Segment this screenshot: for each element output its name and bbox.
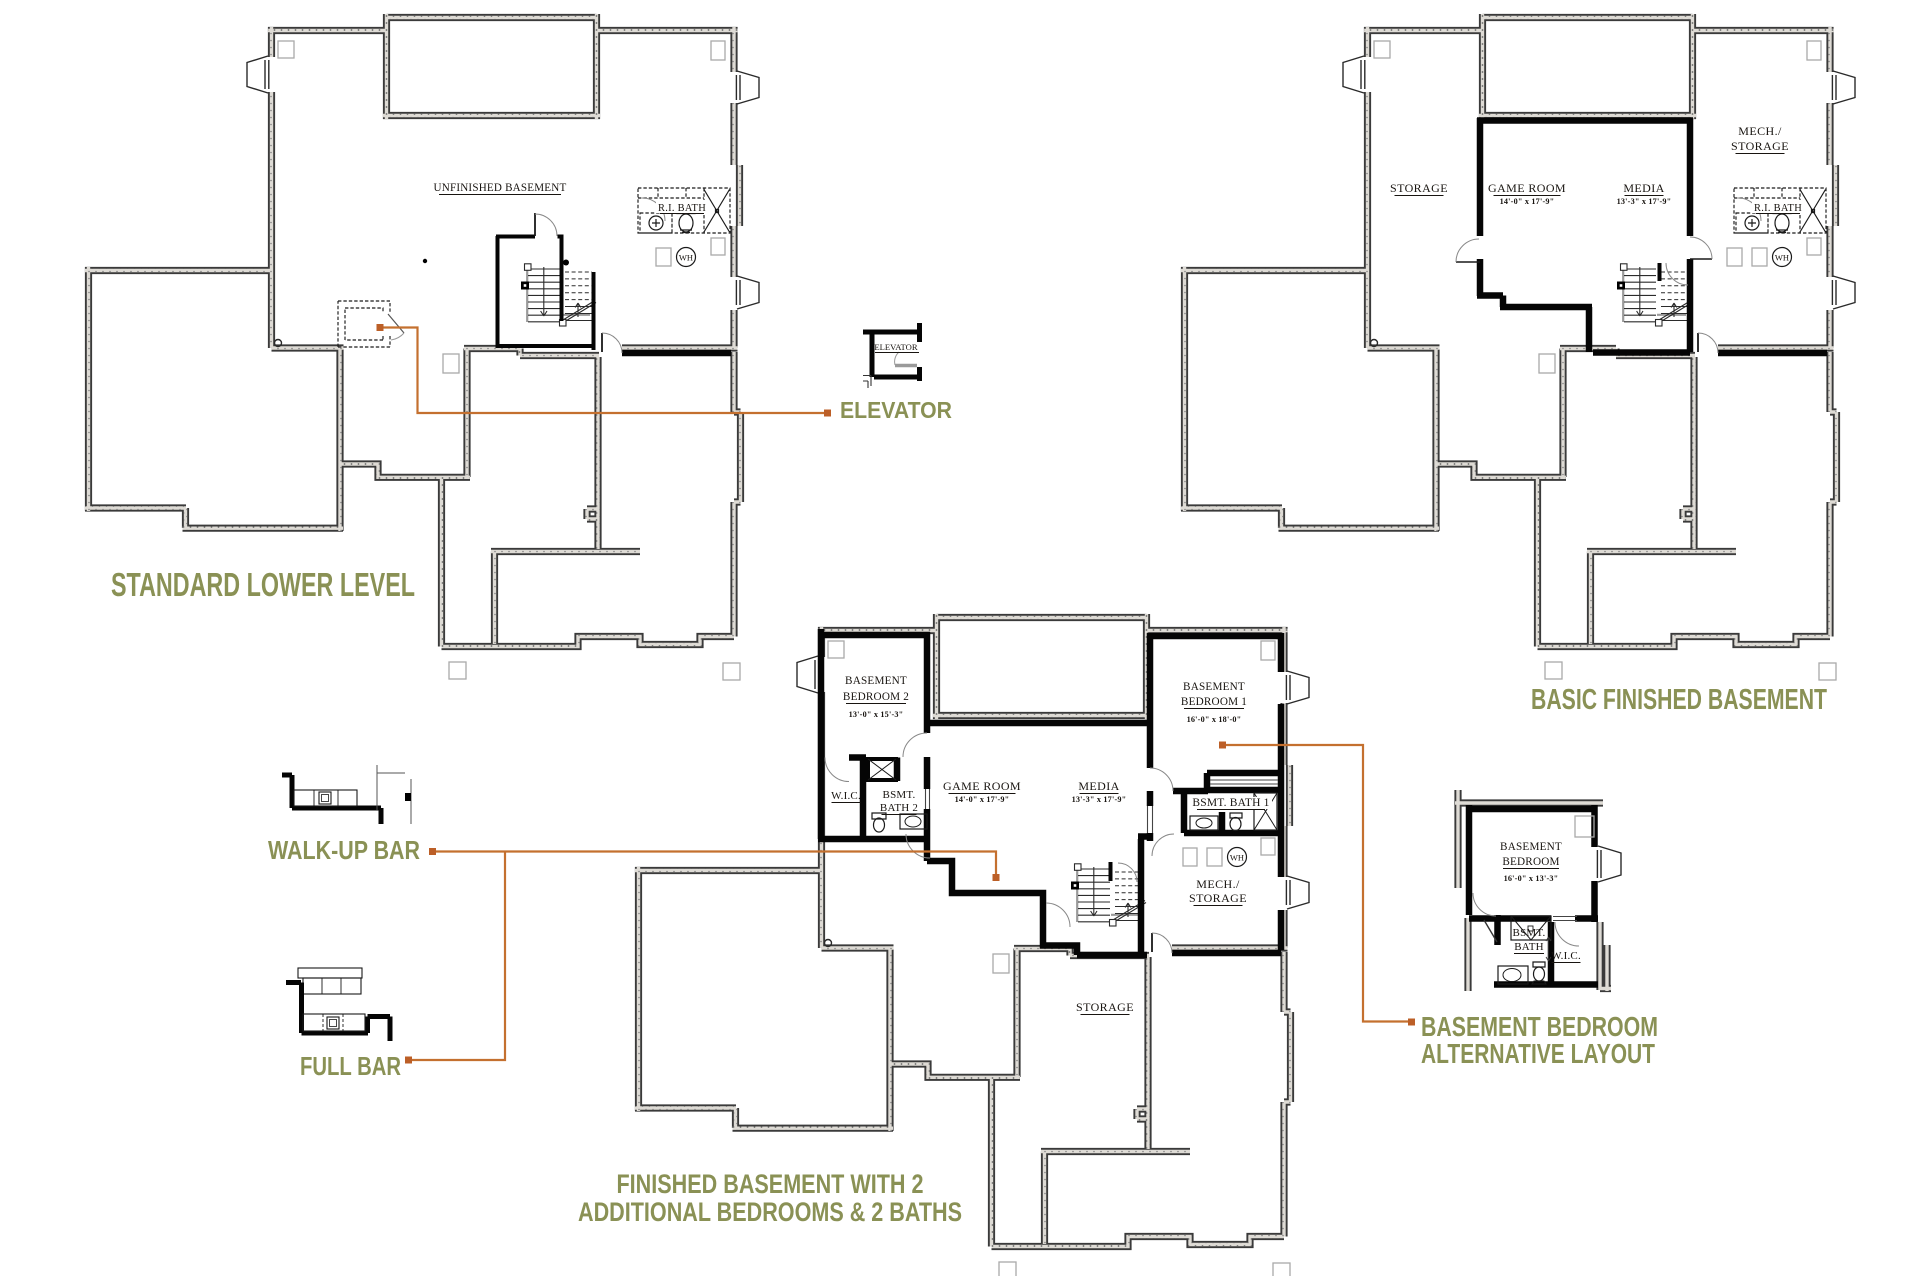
svg-text:ALTERNATIVE LAYOUT: ALTERNATIVE LAYOUT [1421, 1038, 1655, 1069]
svg-text:STORAGE: STORAGE [1076, 1000, 1134, 1014]
svg-text:W.I.C.: W.I.C. [831, 790, 861, 802]
svg-text:BEDROOM 2: BEDROOM 2 [843, 691, 909, 703]
svg-text:BEDROOM 1: BEDROOM 1 [1181, 696, 1247, 708]
svg-text:W.I.C.: W.I.C. [1551, 950, 1581, 962]
svg-text:BATH 2: BATH 2 [880, 802, 918, 814]
svg-text:FULL BAR: FULL BAR [300, 1051, 401, 1081]
svg-text:STORAGE: STORAGE [1390, 181, 1448, 195]
svg-text:UNFINISHED BASEMENT: UNFINISHED BASEMENT [434, 182, 567, 194]
svg-text:FINISHED BASEMENT WITH 2: FINISHED BASEMENT WITH 2 [617, 1169, 924, 1199]
svg-text:BASEMENT: BASEMENT [1183, 681, 1245, 693]
svg-text:BSMT. BATH 1: BSMT. BATH 1 [1192, 797, 1269, 809]
svg-text:BASIC FINISHED BASEMENT: BASIC FINISHED BASEMENT [1531, 684, 1827, 716]
svg-text:ELEVATOR: ELEVATOR [874, 342, 917, 352]
svg-text:MECH./: MECH./ [1738, 124, 1782, 138]
svg-text:STORAGE: STORAGE [1189, 891, 1247, 905]
svg-text:14'-0" x 17'-9": 14'-0" x 17'-9" [1500, 197, 1555, 206]
svg-text:13'-3" x 17'-9": 13'-3" x 17'-9" [1072, 795, 1127, 804]
svg-text:GAME ROOM: GAME ROOM [1488, 181, 1566, 195]
svg-text:BASEMENT: BASEMENT [845, 675, 907, 687]
svg-text:MEDIA: MEDIA [1623, 181, 1664, 195]
svg-text:BSMT.: BSMT. [883, 789, 916, 801]
svg-text:14'-0" x 17'-9": 14'-0" x 17'-9" [955, 795, 1010, 804]
svg-text:MECH./: MECH./ [1196, 877, 1240, 891]
svg-text:ELEVATOR: ELEVATOR [840, 397, 952, 423]
svg-text:WALK-UP BAR: WALK-UP BAR [268, 835, 420, 865]
svg-text:STORAGE: STORAGE [1731, 139, 1789, 153]
svg-text:13'-3" x 17'-9": 13'-3" x 17'-9" [1617, 197, 1672, 206]
svg-text:BATH: BATH [1514, 941, 1544, 953]
svg-text:BEDROOM: BEDROOM [1502, 856, 1559, 868]
svg-text:STANDARD LOWER LEVEL: STANDARD LOWER LEVEL [111, 566, 415, 603]
svg-text:16'-0" x 18'-0": 16'-0" x 18'-0" [1187, 715, 1242, 724]
svg-text:BSMT.: BSMT. [1513, 927, 1546, 939]
svg-text:MEDIA: MEDIA [1078, 779, 1119, 793]
svg-text:16'-0" x 13'-3": 16'-0" x 13'-3" [1504, 874, 1559, 883]
svg-text:BASEMENT: BASEMENT [1500, 841, 1562, 853]
svg-text:ADDITIONAL BEDROOMS & 2 BATHS: ADDITIONAL BEDROOMS & 2 BATHS [578, 1197, 962, 1227]
svg-text:GAME ROOM: GAME ROOM [943, 779, 1021, 793]
svg-text:13'-0" x 15'-3": 13'-0" x 15'-3" [849, 710, 904, 719]
